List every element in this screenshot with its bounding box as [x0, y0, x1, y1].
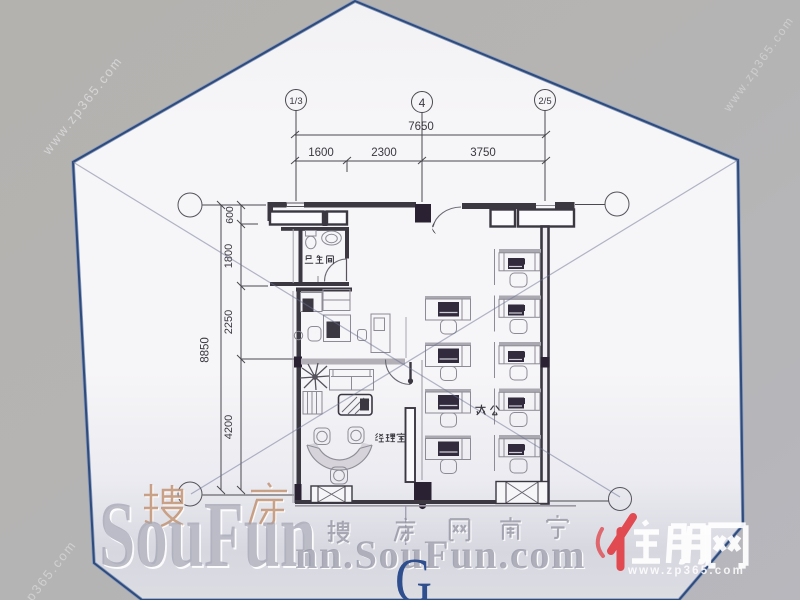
svg-text:600: 600	[224, 206, 236, 224]
svg-text:4200: 4200	[223, 415, 235, 439]
svg-text:1800: 1800	[223, 244, 235, 268]
svg-text:nn.SouFun.com: nn.SouFun.com	[295, 532, 586, 577]
svg-text:2/5: 2/5	[538, 96, 551, 107]
svg-text:www.zp365.com: www.zp365.com	[627, 565, 745, 577]
svg-text:2250: 2250	[223, 310, 235, 334]
svg-text:1600: 1600	[308, 147, 334, 159]
svg-text:1/3: 1/3	[289, 96, 302, 107]
svg-text:4: 4	[419, 96, 426, 110]
svg-text:G: G	[395, 545, 432, 600]
svg-text:7650: 7650	[408, 121, 434, 133]
svg-text:3750: 3750	[470, 147, 496, 159]
svg-text:2300: 2300	[371, 147, 397, 159]
svg-text:8850: 8850	[200, 337, 212, 363]
svg-text:SouFun: SouFun	[99, 483, 316, 587]
